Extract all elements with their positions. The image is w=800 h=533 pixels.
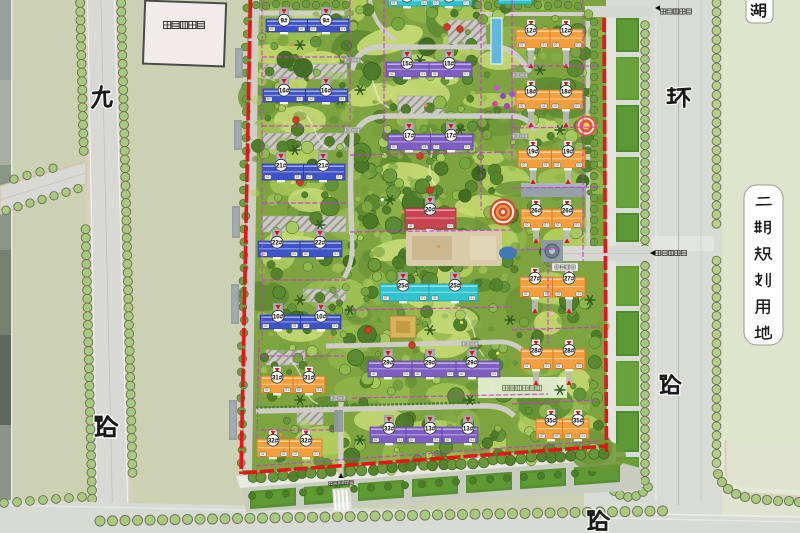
svg-text:01: 01 bbox=[404, 372, 408, 376]
svg-text:31#: 31# bbox=[272, 374, 283, 381]
svg-text:01: 01 bbox=[575, 223, 579, 227]
svg-text:02: 02 bbox=[567, 434, 571, 438]
svg-text:02: 02 bbox=[294, 452, 298, 456]
svg-text:01: 01 bbox=[337, 175, 341, 179]
svg-text:17#: 17# bbox=[446, 132, 457, 139]
svg-text:02: 02 bbox=[435, 145, 439, 149]
svg-text:35#: 35# bbox=[573, 417, 584, 424]
svg-text:02: 02 bbox=[265, 388, 269, 392]
svg-text:22#: 22# bbox=[272, 239, 283, 246]
svg-text:02: 02 bbox=[540, 434, 544, 438]
svg-text:22#: 22# bbox=[315, 239, 326, 246]
svg-text:29#: 29# bbox=[467, 359, 478, 366]
svg-text:01: 01 bbox=[340, 97, 344, 101]
svg-text:01: 01 bbox=[575, 104, 579, 108]
svg-text:35#: 35# bbox=[546, 417, 557, 424]
svg-text:02: 02 bbox=[297, 388, 301, 392]
svg-text:01: 01 bbox=[542, 43, 546, 47]
svg-text:17#: 17# bbox=[404, 132, 415, 139]
svg-text:01: 01 bbox=[398, 438, 402, 442]
svg-text:02: 02 bbox=[520, 43, 524, 47]
svg-text:02: 02 bbox=[372, 372, 376, 376]
svg-text:01: 01 bbox=[421, 72, 425, 76]
svg-text:16#: 16# bbox=[279, 87, 290, 94]
svg-text:10#: 10# bbox=[316, 313, 327, 320]
svg-text:01: 01 bbox=[542, 104, 546, 108]
svg-text:01: 01 bbox=[434, 438, 438, 442]
svg-text:02: 02 bbox=[308, 175, 312, 179]
svg-text:01: 01 bbox=[317, 388, 321, 392]
svg-text:02: 02 bbox=[310, 97, 314, 101]
svg-text:01: 01 bbox=[333, 324, 337, 328]
svg-text:01: 01 bbox=[285, 388, 289, 392]
svg-text:02: 02 bbox=[267, 97, 271, 101]
svg-text:02: 02 bbox=[409, 224, 413, 228]
svg-text:02: 02 bbox=[416, 372, 420, 376]
svg-text:02: 02 bbox=[390, 72, 394, 76]
svg-text:02: 02 bbox=[520, 104, 524, 108]
svg-text:01: 01 bbox=[577, 163, 581, 167]
svg-text:02: 02 bbox=[525, 364, 529, 368]
svg-text:02: 02 bbox=[374, 438, 378, 442]
svg-text:31#: 31# bbox=[304, 374, 315, 381]
svg-text:32#: 32# bbox=[268, 437, 279, 444]
svg-text:01: 01 bbox=[492, 372, 496, 376]
svg-text:01: 01 bbox=[421, 296, 425, 300]
svg-text:02: 02 bbox=[304, 252, 308, 256]
svg-text:01: 01 bbox=[300, 27, 304, 31]
svg-text:26#: 26# bbox=[531, 207, 542, 214]
svg-text:01: 01 bbox=[576, 43, 580, 47]
svg-text:02: 02 bbox=[554, 104, 558, 108]
svg-text:18#: 18# bbox=[526, 88, 537, 95]
svg-text:02: 02 bbox=[557, 364, 561, 368]
svg-text:01: 01 bbox=[341, 27, 345, 31]
svg-text:10#: 10# bbox=[273, 313, 284, 320]
svg-text:01: 01 bbox=[298, 97, 302, 101]
svg-text:13#: 13# bbox=[425, 425, 436, 432]
svg-text:01: 01 bbox=[296, 175, 300, 179]
svg-text:19#: 19# bbox=[528, 148, 539, 155]
svg-text:25#: 25# bbox=[450, 282, 461, 289]
svg-text:01: 01 bbox=[293, 324, 297, 328]
svg-text:02: 02 bbox=[433, 296, 437, 300]
svg-text:01: 01 bbox=[470, 438, 474, 442]
svg-text:02: 02 bbox=[410, 438, 414, 442]
svg-text:27#: 27# bbox=[564, 275, 575, 282]
svg-text:12#: 12# bbox=[561, 27, 572, 34]
svg-text:02: 02 bbox=[433, 72, 437, 76]
svg-text:15#: 15# bbox=[444, 60, 455, 67]
svg-text:02: 02 bbox=[460, 372, 464, 376]
svg-text:01: 01 bbox=[581, 434, 585, 438]
svg-text:01: 01 bbox=[544, 163, 548, 167]
svg-text:12#: 12# bbox=[526, 27, 537, 34]
svg-text:02: 02 bbox=[392, 1, 396, 5]
svg-text:01: 01 bbox=[555, 434, 559, 438]
svg-text:01: 01 bbox=[465, 145, 469, 149]
svg-text:29#: 29# bbox=[425, 359, 436, 366]
svg-text:02: 02 bbox=[446, 438, 450, 442]
svg-text:02: 02 bbox=[525, 223, 529, 227]
svg-text:28#: 28# bbox=[531, 347, 542, 354]
svg-text:01: 01 bbox=[314, 452, 318, 456]
svg-text:28#: 28# bbox=[564, 347, 575, 354]
svg-text:01: 01 bbox=[422, 1, 426, 5]
svg-text:02: 02 bbox=[266, 175, 270, 179]
svg-text:29#: 29# bbox=[383, 359, 394, 366]
svg-text:32#: 32# bbox=[301, 437, 312, 444]
svg-text:01: 01 bbox=[292, 252, 296, 256]
svg-text:16#: 16# bbox=[321, 87, 332, 94]
svg-text:02: 02 bbox=[557, 292, 561, 296]
svg-text:02: 02 bbox=[305, 324, 309, 328]
svg-text:01: 01 bbox=[577, 292, 581, 296]
svg-text:18#: 18# bbox=[561, 88, 572, 95]
svg-text:20#: 20# bbox=[425, 206, 436, 213]
svg-text:02: 02 bbox=[554, 43, 558, 47]
svg-text:02: 02 bbox=[434, 1, 438, 5]
svg-text:02: 02 bbox=[312, 27, 316, 31]
svg-text:33#: 33# bbox=[384, 425, 395, 432]
svg-text:02: 02 bbox=[392, 145, 396, 149]
svg-text:21#: 21# bbox=[318, 162, 329, 169]
svg-text:01: 01 bbox=[448, 372, 452, 376]
svg-text:01: 01 bbox=[423, 145, 427, 149]
svg-text:01: 01 bbox=[282, 452, 286, 456]
svg-text:01: 01 bbox=[464, 1, 468, 5]
svg-text:9#: 9# bbox=[323, 17, 330, 24]
svg-text:01: 01 bbox=[545, 364, 549, 368]
svg-text:01: 01 bbox=[470, 296, 474, 300]
svg-text:25#: 25# bbox=[398, 282, 409, 289]
svg-text:01: 01 bbox=[448, 224, 452, 228]
svg-text:15#: 15# bbox=[402, 60, 413, 67]
svg-text:02: 02 bbox=[270, 27, 274, 31]
svg-text:13#: 13# bbox=[463, 425, 474, 432]
svg-text:02: 02 bbox=[524, 292, 528, 296]
svg-text:02: 02 bbox=[556, 223, 560, 227]
svg-text:01: 01 bbox=[334, 252, 338, 256]
svg-text:01: 01 bbox=[464, 72, 468, 76]
svg-text:21#: 21# bbox=[276, 162, 287, 169]
svg-text:01: 01 bbox=[544, 223, 548, 227]
svg-text:02: 02 bbox=[522, 163, 526, 167]
svg-text:02: 02 bbox=[384, 296, 388, 300]
svg-text:27#: 27# bbox=[530, 275, 541, 282]
svg-text:01: 01 bbox=[577, 364, 581, 368]
svg-text:02: 02 bbox=[261, 452, 265, 456]
svg-text:02: 02 bbox=[264, 324, 268, 328]
svg-text:26#: 26# bbox=[562, 207, 573, 214]
svg-text:9#: 9# bbox=[281, 17, 288, 24]
svg-text:19#: 19# bbox=[563, 148, 574, 155]
svg-text:02: 02 bbox=[556, 163, 560, 167]
